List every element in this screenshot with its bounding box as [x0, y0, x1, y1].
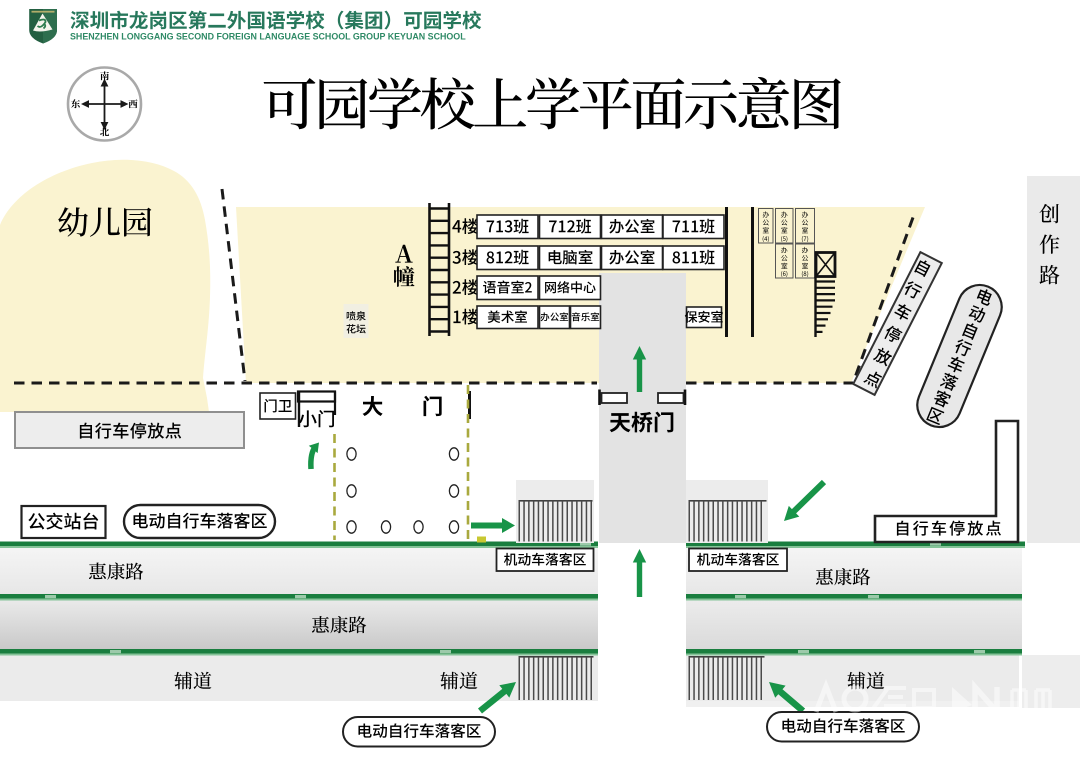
svg-text:SHENZHEN LONGGANG SECOND FOREI: SHENZHEN LONGGANG SECOND FOREIGN LANGUAG…	[70, 32, 466, 42]
